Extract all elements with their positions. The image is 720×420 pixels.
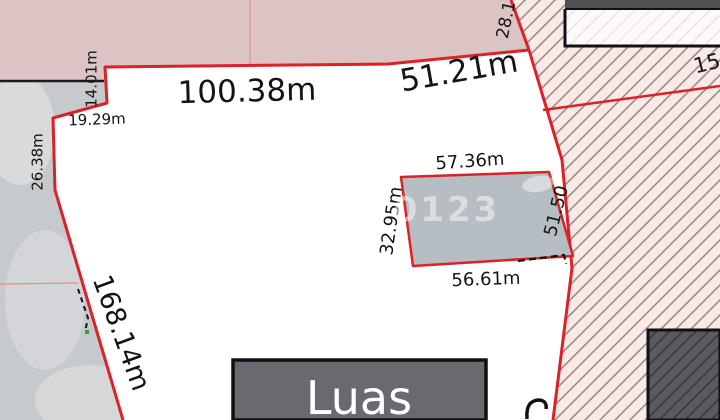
measurement-label-inner-top: 57.36m: [435, 151, 505, 174]
building-footprint-dark: [648, 330, 720, 420]
area-box-label: Luas: [306, 375, 412, 420]
watermark-text: 0123: [394, 193, 501, 227]
measurement-label-neighbor: 15: [691, 51, 720, 78]
measurement-label-notch-edge: 19.29m: [68, 112, 126, 129]
measurement-label-inner-bottom: 56.61m: [451, 270, 521, 290]
survey-marker-green: [85, 330, 89, 334]
plan-map-layers: [0, 0, 720, 420]
measurement-label-left-upper: 26.38m: [31, 133, 46, 191]
building-footprint-top: [565, 9, 720, 46]
cadastral-plan-image: 100.38m 51.21m 28.1 15 14.01m 19.29m 26.…: [0, 0, 720, 420]
measurement-label-top-edge: 100.38m: [177, 75, 316, 110]
building-roof-bar: [565, 0, 720, 9]
measurement-label-step-edge: 14.01m: [85, 50, 100, 108]
